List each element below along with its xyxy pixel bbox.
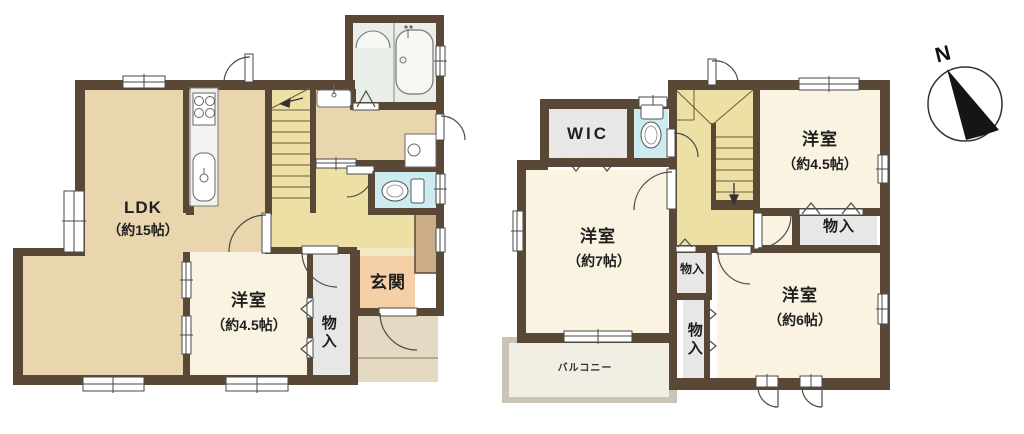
bedroom6-label: 洋室	[770, 287, 830, 305]
closet-low-label: 物入	[686, 306, 702, 374]
toilet-icon-1f	[382, 179, 424, 203]
bedroom1f-label: 洋室	[210, 292, 288, 310]
wic-label: WIC	[558, 125, 618, 143]
bedroom7-size-label: （約7帖）	[556, 254, 642, 269]
compass	[928, 67, 1002, 141]
bedroom6-size-label: （約6帖）	[758, 313, 842, 328]
shoe-cabinet	[415, 213, 437, 273]
floorplan-canvas: LDK （約15帖） 洋室 （約4.5帖） 物入 玄関 WIC 洋室 （約4.5…	[0, 0, 1024, 434]
vanity-icon	[405, 134, 436, 167]
bedroom7-label: 洋室	[568, 228, 628, 246]
kitchen-counter	[190, 88, 218, 206]
bedroom-7-2f	[526, 170, 669, 333]
floorplan-drawing	[0, 0, 1024, 434]
ldk-size-label: （約15帖）	[78, 223, 208, 238]
closet1f-label: 物入	[320, 297, 336, 369]
floor1-plan	[13, 15, 465, 393]
kitchen-sink-icon	[193, 153, 215, 201]
staircase-1f	[272, 90, 310, 213]
closet-top-label: 物入	[813, 219, 865, 235]
ldk-label: LDK	[88, 199, 198, 217]
bedroom-45-2f	[760, 90, 880, 208]
closet-mid-label: 物入	[674, 263, 710, 276]
bedroom45-label: 洋室	[791, 131, 849, 149]
bedroom-1f	[188, 252, 312, 378]
bedroom45-size-label: （約4.5帖）	[768, 157, 872, 172]
porch	[358, 316, 438, 382]
bedroom1f-size-label: （約4.5帖）	[196, 318, 302, 333]
bathtub-icon	[396, 30, 433, 94]
balcony-label: バルコニー	[545, 364, 625, 375]
hallway-1f-lower	[265, 213, 415, 252]
entrance-label: 玄関	[362, 274, 414, 292]
